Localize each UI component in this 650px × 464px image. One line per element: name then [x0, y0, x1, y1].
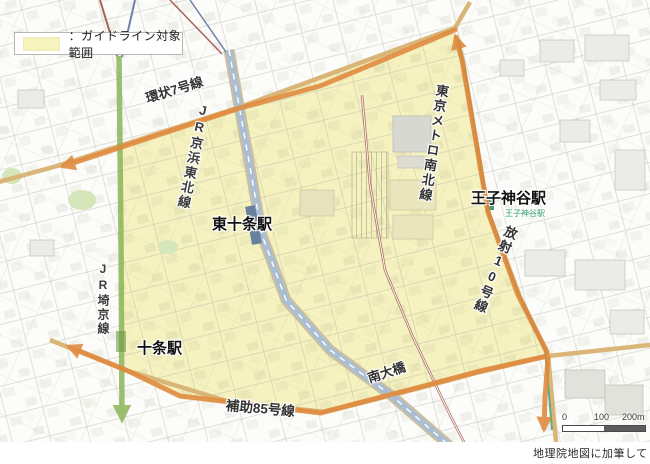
scale-bar: 0 100 200m — [558, 412, 650, 438]
annotated-gsi-map-figure: 環状7号線 JR京浜東北線 東京メトロ南北線 放射10号線 JR埼京線 東十条駅… — [0, 0, 650, 464]
jujo-station-marker — [116, 331, 126, 352]
scale-tick-200: 200m — [622, 412, 645, 422]
scale-tick-100: 100 — [594, 412, 609, 422]
higashi-jujo-station-marker — [250, 206, 257, 244]
scale-bar-left-half — [563, 426, 604, 431]
map-canvas — [0, 0, 650, 442]
legend-label: ：ガイドライン対象範囲 — [69, 27, 182, 61]
legend-area-swatch — [23, 37, 60, 51]
scale-bar-rule — [562, 425, 646, 432]
street-grid-texture-2 — [0, 0, 650, 442]
attribution-note: 地理院地図に加筆して作成 — [533, 445, 650, 464]
hatched-block — [352, 152, 388, 238]
scale-tick-0: 0 — [562, 412, 567, 422]
legend-box: ：ガイドライン対象範囲 — [14, 32, 183, 55]
scale-bar-right-half — [604, 426, 645, 431]
